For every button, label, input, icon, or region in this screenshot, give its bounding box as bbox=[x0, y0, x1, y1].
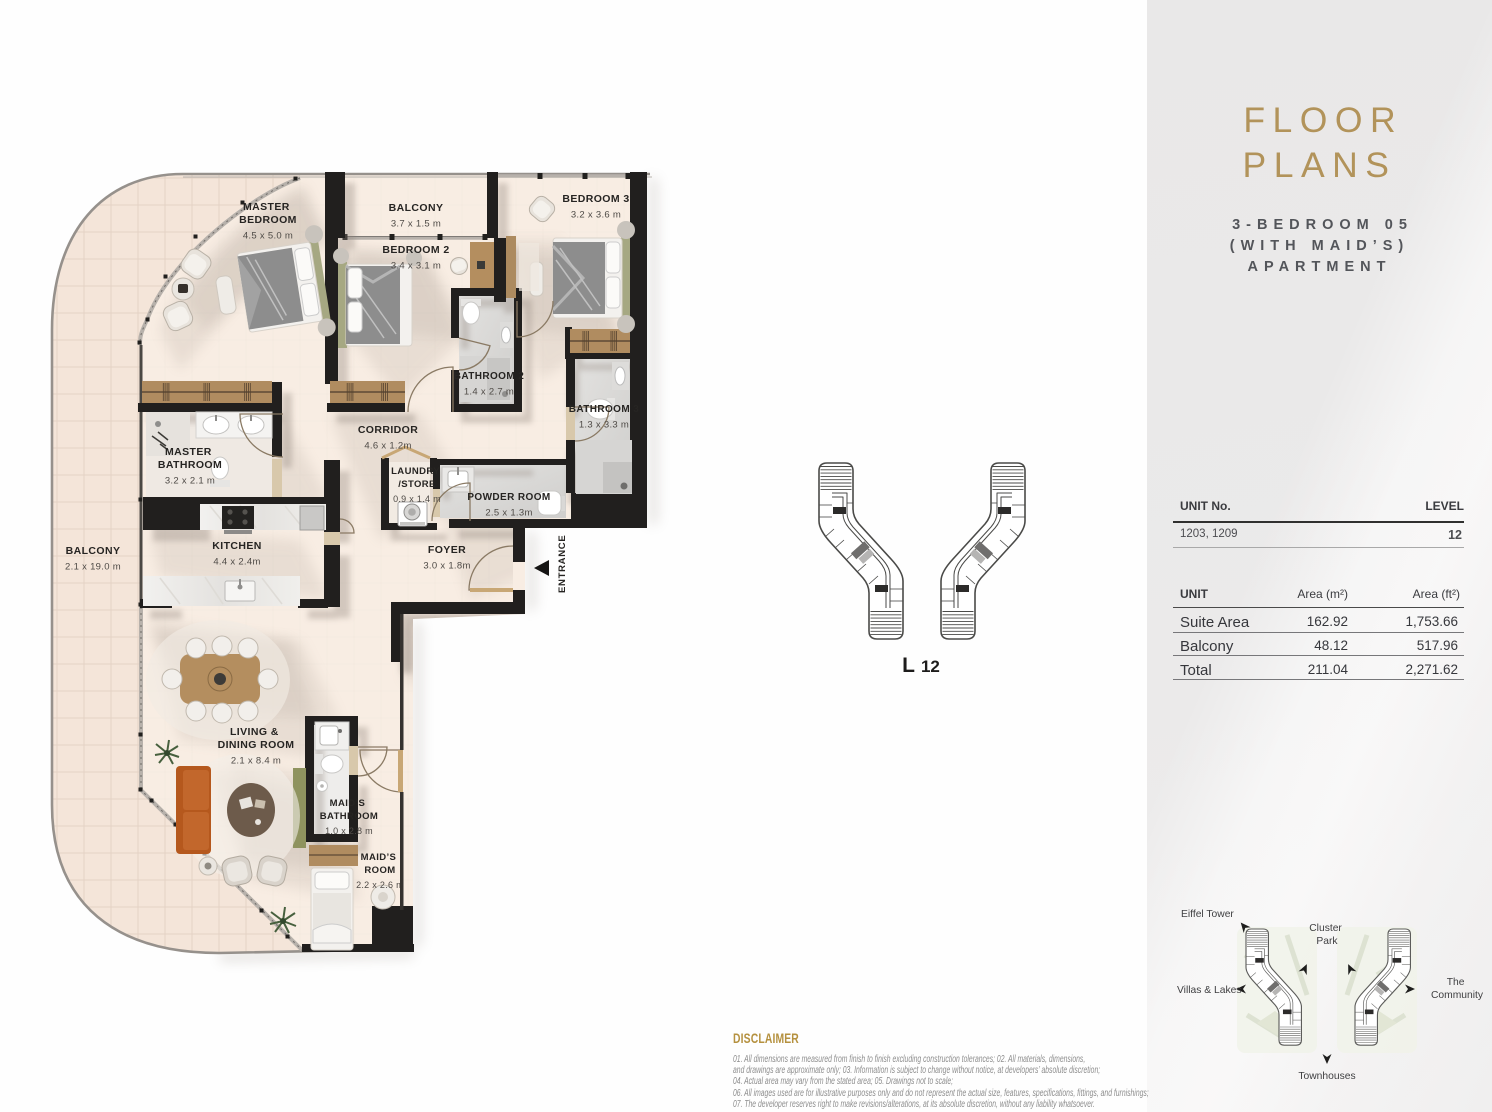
svg-text:BALCONY: BALCONY bbox=[389, 202, 444, 214]
svg-text:L12: L12 bbox=[902, 654, 940, 677]
svg-text:BATHROOM 2: BATHROOM 2 bbox=[454, 371, 525, 382]
svg-text:KITCHEN: KITCHEN bbox=[212, 540, 261, 552]
svg-text:MASTER BATHROOM: MASTER BATHROOM bbox=[158, 446, 222, 471]
svg-text:MASTER BEDROOM: MASTER BEDROOM bbox=[239, 201, 297, 226]
svg-text:2.1 x 19.0 m: 2.1 x 19.0 m bbox=[65, 562, 121, 573]
svg-text:1.0 x 2.8 m: 1.0 x 2.8 m bbox=[325, 826, 373, 836]
svg-text:2.1 x 8.4 m: 2.1 x 8.4 m bbox=[231, 756, 281, 767]
svg-text:The Community: The Community bbox=[1431, 977, 1484, 1001]
svg-text:FOYER: FOYER bbox=[428, 544, 466, 556]
svg-text:3.0 x 1.8m: 3.0 x 1.8m bbox=[423, 561, 470, 572]
svg-text:4.5 x 5.0 m: 4.5 x 5.0 m bbox=[243, 231, 293, 242]
svg-text:Townhouses: Townhouses bbox=[1298, 1071, 1355, 1082]
svg-text:POWDER ROOM: POWDER ROOM bbox=[467, 492, 550, 503]
svg-text:ENTRANCE: ENTRANCE bbox=[557, 535, 568, 593]
svg-text:BEDROOM 2: BEDROOM 2 bbox=[382, 244, 449, 256]
svg-text:Villas & Lakes: Villas & Lakes bbox=[1177, 985, 1242, 996]
svg-text:3.7 x 1.5 m: 3.7 x 1.5 m bbox=[391, 219, 441, 230]
svg-text:1.3 x 3.3 m: 1.3 x 3.3 m bbox=[579, 420, 629, 431]
svg-text:2.5 x 1.3m: 2.5 x 1.3m bbox=[485, 508, 532, 519]
svg-text:1.4 x 2.7 m: 1.4 x 2.7 m bbox=[464, 387, 514, 398]
svg-text:4.6 x 1.2m: 4.6 x 1.2m bbox=[364, 441, 411, 452]
svg-text:BATHROOM 3: BATHROOM 3 bbox=[569, 404, 640, 415]
svg-text:CORRIDOR: CORRIDOR bbox=[358, 424, 418, 436]
svg-text:3.4 x 3.1 m: 3.4 x 3.1 m bbox=[391, 261, 441, 272]
svg-text:2.2 x 2.6 m: 2.2 x 2.6 m bbox=[356, 880, 404, 890]
svg-text:0.9 x 1.4 m: 0.9 x 1.4 m bbox=[393, 494, 441, 504]
svg-text:Eiffel Tower: Eiffel Tower bbox=[1181, 909, 1234, 920]
svg-text:BALCONY: BALCONY bbox=[66, 545, 121, 557]
svg-text:4.4 x 2.4m: 4.4 x 2.4m bbox=[213, 557, 260, 568]
svg-text:3.2 x 3.6 m: 3.2 x 3.6 m bbox=[571, 210, 621, 221]
svg-text:BEDROOM 3: BEDROOM 3 bbox=[562, 193, 629, 205]
svg-text:3.2 x 2.1 m: 3.2 x 2.1 m bbox=[165, 476, 215, 487]
